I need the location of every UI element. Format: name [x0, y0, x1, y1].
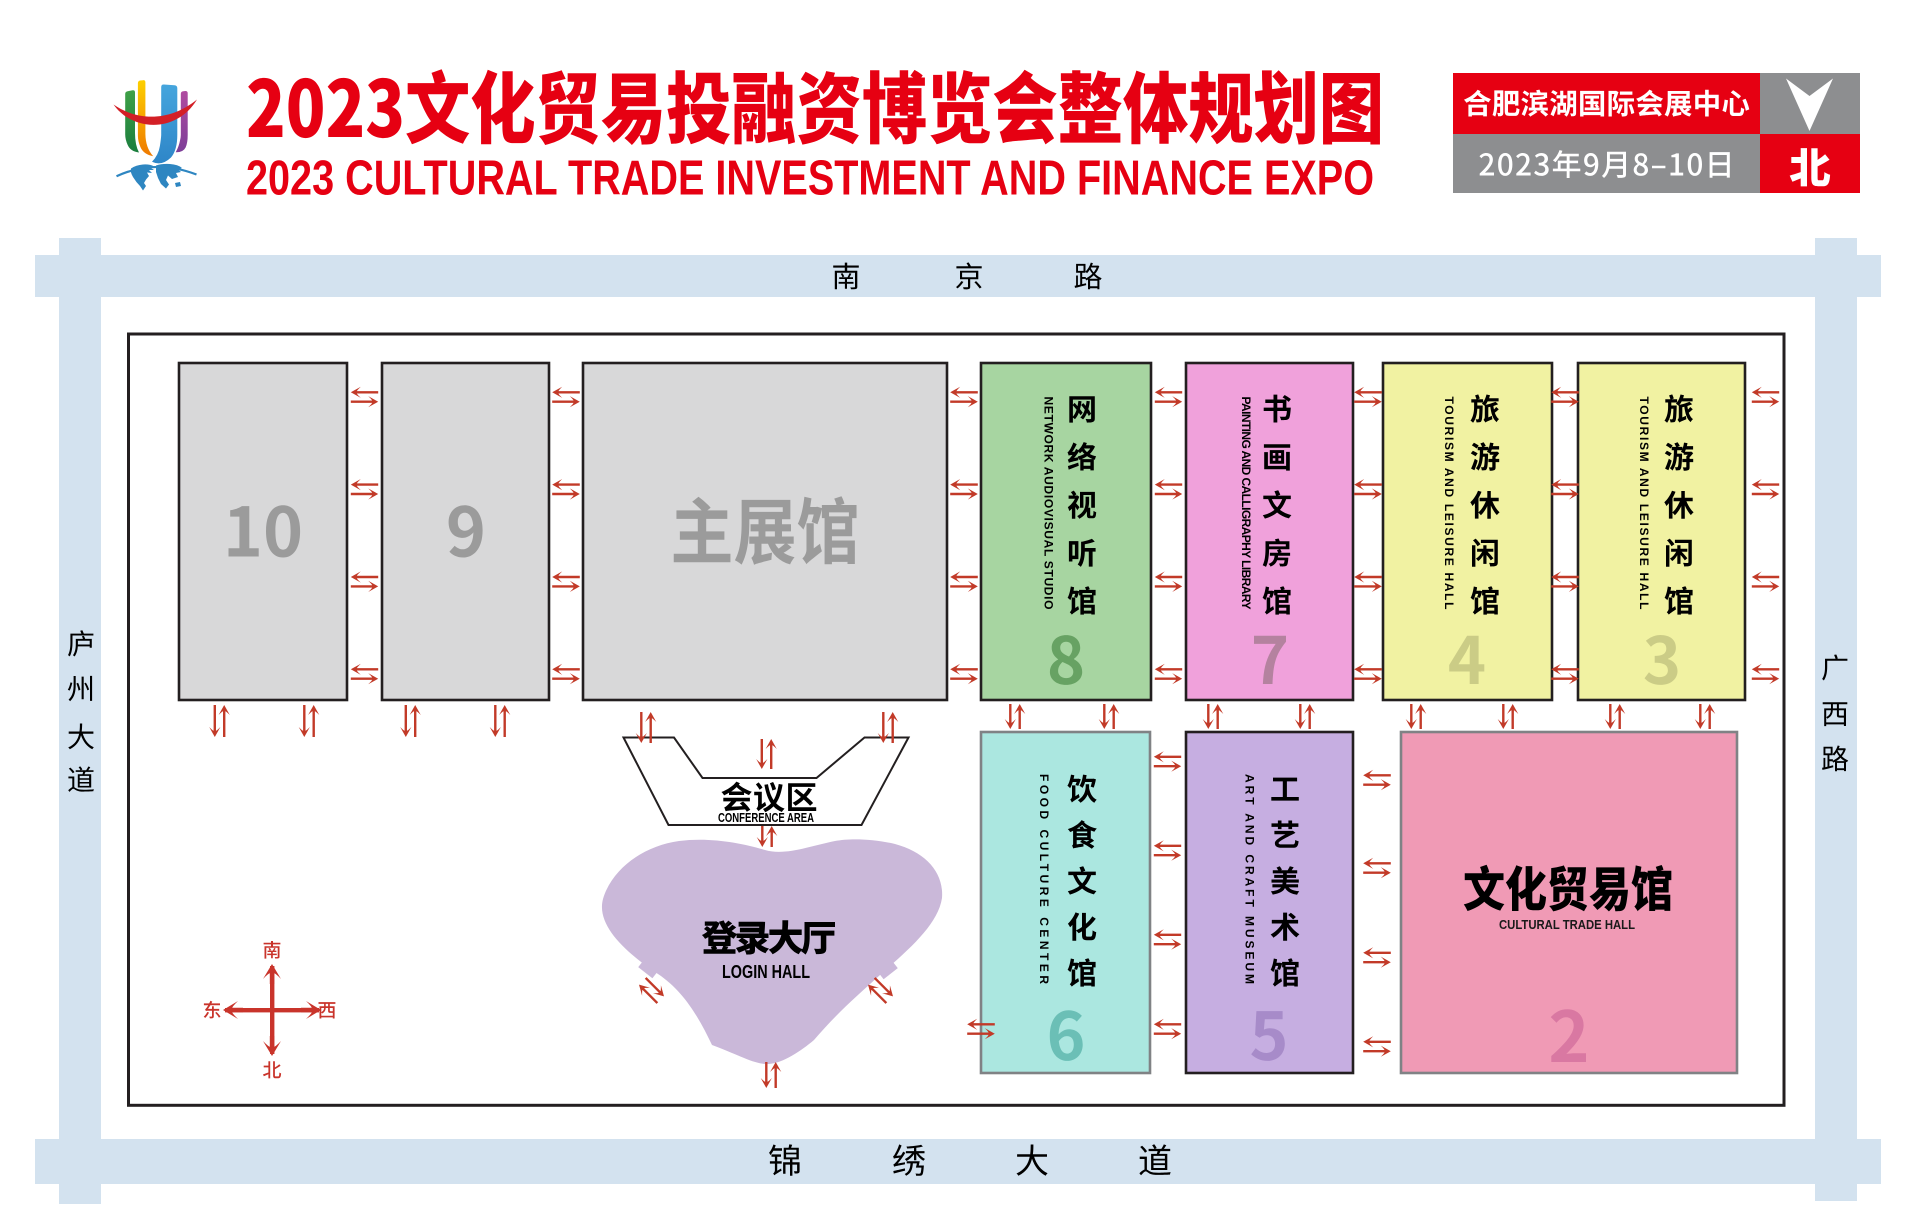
svg-text:LOGIN HALL: LOGIN HALL [722, 962, 810, 982]
svg-text:CULTURAL TRADE HALL: CULTURAL TRADE HALL [1499, 918, 1635, 932]
svg-text:TOURISM AND LEISURE HALL: TOURISM AND LEISURE HALL [1637, 397, 1651, 610]
svg-text:2023 CULTURAL TRADE INVESTMENT: 2023 CULTURAL TRADE INVESTMENT AND FINAN… [246, 152, 1374, 206]
svg-text:FOOD CULTURE CENTER: FOOD CULTURE CENTER [1037, 774, 1051, 984]
svg-text:TOURISM AND LEISURE HALL: TOURISM AND LEISURE HALL [1442, 397, 1456, 610]
svg-text:PAINTING AND CALLIGRAPHY LIBRA: PAINTING AND CALLIGRAPHY LIBRARY [1239, 397, 1253, 610]
svg-text:CONFERENCE AREA: CONFERENCE AREA [718, 811, 814, 825]
svg-text:NETWORK AUDIOVISUAL STUDIO: NETWORK AUDIOVISUAL STUDIO [1042, 397, 1056, 610]
